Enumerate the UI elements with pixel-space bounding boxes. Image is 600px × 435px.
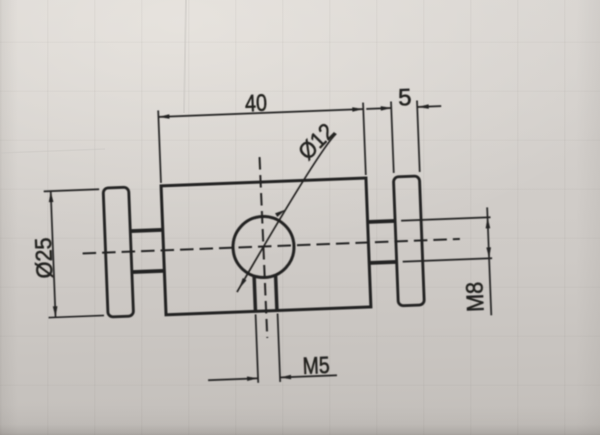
svg-text:5: 5 bbox=[398, 84, 412, 111]
svg-text:Ø12: Ø12 bbox=[293, 118, 340, 165]
svg-text:M8: M8 bbox=[462, 281, 490, 312]
svg-text:Ø25: Ø25 bbox=[30, 237, 58, 279]
svg-text:40: 40 bbox=[244, 90, 267, 118]
svg-text:M5: M5 bbox=[302, 352, 330, 380]
